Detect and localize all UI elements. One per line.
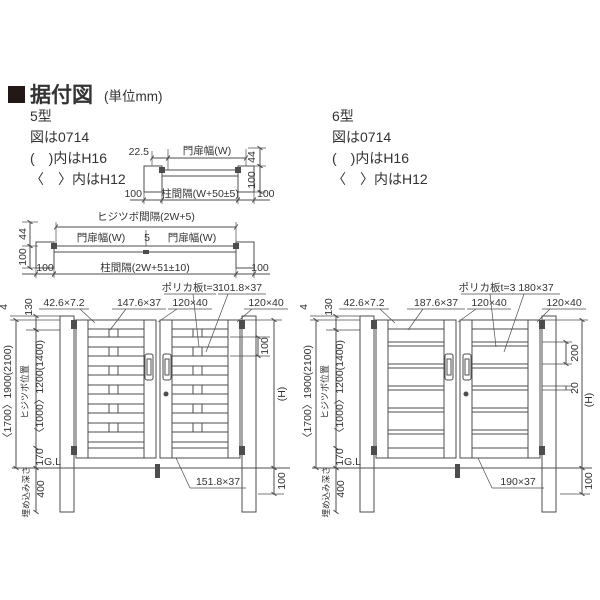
elev5-keyhole <box>164 392 169 397</box>
plan1-offset-dim: 22.5 <box>129 146 150 158</box>
model5-h12-note: 〈 〉内はH12 <box>30 171 126 187</box>
elev5-hinge-bottom-right <box>239 446 245 455</box>
model6-h12-note: 〈 〉内はH12 <box>332 171 428 187</box>
elev6-handle-left-grip <box>447 359 451 375</box>
elevation-model6: 〈1700〉1900(2100) 4 130 ヒジツボ位置 〈1000〉1200… <box>298 281 595 518</box>
plan2-post-right-dim: 100 <box>251 262 269 274</box>
elev6-rail-offset-dim: 130 <box>323 298 335 316</box>
elev5-poly-label: ポリカ板t=3 <box>162 281 219 294</box>
model6-name: 6型 <box>332 108 354 124</box>
elev5-rail-offset-dim: 130 <box>23 298 35 316</box>
elev6-total-height-dim: 〈1700〉1900(2100) <box>302 345 314 443</box>
model5-name: 5型 <box>30 108 52 124</box>
elev5-hinge-top-left <box>71 320 77 329</box>
elev5-handle-left-grip <box>147 359 151 375</box>
plan2-leafR-dim: 門扉幅(W) <box>168 231 216 244</box>
plan2-thickness-dim: 44 <box>17 228 29 240</box>
installation-diagram-page: 据付図 (単位mm) 5型 図は0714 ( )内はH16 〈 〉内はH12 6… <box>0 0 600 600</box>
elev6-embed-label: 埋め込み深さ <box>321 466 331 517</box>
elev5-leaf-left <box>76 320 156 458</box>
elev6-poly-label: ポリカ板t=3 <box>459 281 516 294</box>
elev6-embed-dim: 400 <box>335 480 347 498</box>
elev6-post-right <box>542 316 556 512</box>
model5-fig-note: 図は0714 <box>30 129 89 145</box>
model6-h16-note: ( )内はH16 <box>332 150 409 166</box>
elev5-topslat-label: 101.8×37 <box>218 282 262 294</box>
elev6-leaf-left <box>376 320 456 458</box>
heading-bullet-square <box>8 86 25 103</box>
elev5-hinge-pos-label: ヒジツボ位置 <box>19 365 30 419</box>
elev6-hinge-pos-dim: 〈1000〉1200(1400) <box>334 340 346 438</box>
elev5-hinge-top-right <box>239 320 245 329</box>
plan2-hinge-span-dim: ヒジツボ間隔(2W+5) <box>97 211 195 223</box>
elev6-center-stop <box>455 464 460 478</box>
elev5-frame2-label: 120×40 <box>248 297 283 309</box>
elev5-slat-label: 147.6×37 <box>117 297 161 309</box>
elev6-pitch-dim: 200 <box>569 344 581 362</box>
plan1-gate-leaf <box>162 170 238 176</box>
plan2-post-depth-dim: 100 <box>17 248 29 266</box>
elev5-embed-dim: 400 <box>35 480 47 498</box>
plan2-hinge-right <box>233 243 239 249</box>
elev5-bottom-rail-label: 151.8×37 <box>196 476 240 488</box>
elev5-post-left <box>60 316 74 512</box>
elev6-hinge-pos-label: ヒジツボ位置 <box>319 365 330 419</box>
elev6-gl-label: G.L <box>344 456 361 468</box>
elev5-gl-label: G.L <box>44 456 61 468</box>
elev5-hinge-pos-dim: 〈1000〉1200(1400) <box>34 340 46 438</box>
elev5-post-right <box>242 316 256 512</box>
elev6-frame1-label: 120×40 <box>471 297 506 309</box>
plan1-hinge-right <box>235 167 241 173</box>
elev6-rail-height-dim: 20 <box>569 382 581 394</box>
elev5-pitch-dim: 100 <box>259 337 271 355</box>
elev6-topslat-label: 180×37 <box>518 282 553 294</box>
elev5-height-symbol: (H) <box>276 387 288 402</box>
model6-fig-note: 図は0714 <box>332 129 391 145</box>
plan1-span-dim: 柱間隔(W+50±5) <box>161 187 239 200</box>
plan2-leafL-dim: 門扉幅(W) <box>77 231 125 244</box>
elev5-top-gap-dim: 4 <box>0 304 10 310</box>
elev5-cap-label: 42.6×7.2 <box>43 297 84 309</box>
elev6-keyhole <box>464 392 469 397</box>
elev6-slat-label: 187.6×37 <box>414 297 458 309</box>
elev5-frame1-label: 120×40 <box>172 297 207 309</box>
elev5-below-gl-dim: 100 <box>276 472 288 490</box>
model5-notes: 5型 図は0714 ( )内はH16 〈 〉内はH12 <box>30 108 126 187</box>
elev6-handle-right-grip <box>465 359 469 375</box>
plan2-center-latch <box>143 250 149 254</box>
elevation-model5: 〈1700〉1900(2100) 4 130 ヒジツボ位置 〈1000〉1200… <box>0 281 290 518</box>
plan1-hinge-left <box>159 167 165 173</box>
plan1-post-depth-dim: 100 <box>246 171 258 189</box>
elev6-hinge-top-left <box>371 320 377 329</box>
elev6-leaf-right <box>460 320 540 458</box>
elev6-hinge-bottom-right <box>539 446 545 455</box>
plan2-span-dim: 柱間隔(2W+51±10) <box>100 261 190 274</box>
elev5-embed-label: 埋め込み深さ <box>21 466 31 517</box>
plan1-thickness-dim: 44 <box>246 151 258 163</box>
plan2-post-left-dim: 100 <box>36 262 54 274</box>
plan2-hinge-left <box>51 243 57 249</box>
page-title: 据付図 <box>30 84 93 107</box>
elev6-cap-label: 42.6×7.2 <box>343 297 384 309</box>
elev5-handle-right-grip <box>165 359 169 375</box>
elev5-hinge-bottom-left <box>71 446 77 455</box>
plan1-post-left-dim: 100 <box>124 188 142 200</box>
elev6-frame2-label: 120×40 <box>546 297 581 309</box>
plan1-post-right-dim: 100 <box>257 188 275 200</box>
plan1-leaf-width-dim: 門扉幅(W) <box>183 144 231 157</box>
plan-view-single: 22.5 門扉幅(W) 44 100 100 柱間隔(W+50±5) 100 <box>124 144 274 204</box>
diagram-canvas: 据付図 (単位mm) 5型 図は0714 ( )内はH16 〈 〉内はH12 6… <box>0 0 600 600</box>
elev6-hinge-top-right <box>539 320 545 329</box>
plan-view-double: ヒジツボ間隔(2W+5) 門扉幅(W) 5 門扉幅(W) 44 100 100 … <box>17 211 270 278</box>
elev6-top-gap-dim: 4 <box>298 304 310 310</box>
unit-note: (単位mm) <box>104 89 162 104</box>
model5-h16-note: ( )内はH16 <box>30 150 107 166</box>
elev5-total-height-dim: 〈1700〉1900(2100) <box>2 345 14 443</box>
elev6-below-gl-dim: 100 <box>583 472 595 490</box>
elev6-hinge-bottom-left <box>371 446 377 455</box>
plan2-gap-dim: 5 <box>144 232 150 244</box>
elev6-post-left <box>360 316 374 512</box>
page-header: 据付図 (単位mm) <box>8 84 162 107</box>
elev5-center-stop <box>155 464 160 478</box>
elev6-bottom-rail-label: 190×37 <box>500 476 535 488</box>
model6-notes: 6型 図は0714 ( )内はH16 〈 〉内はH12 <box>332 108 428 187</box>
elev5-leaf-right <box>160 320 240 458</box>
elev6-height-symbol: (H) <box>583 393 595 408</box>
